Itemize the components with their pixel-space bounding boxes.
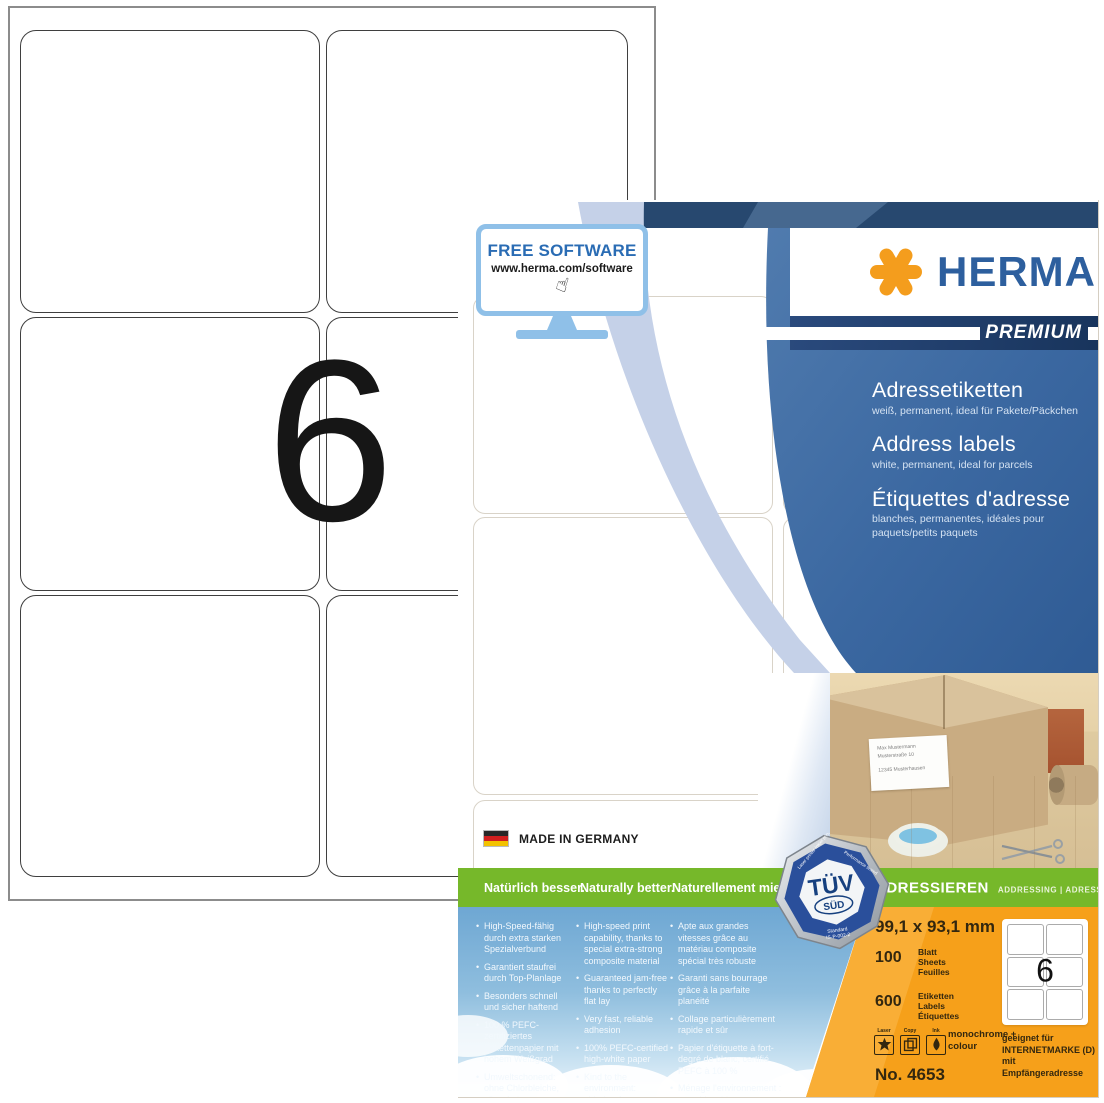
product-subtitle-en: white, permanent, ideal for parcels xyxy=(872,459,1084,473)
copy-label: Copy xyxy=(899,1029,921,1035)
label-cell xyxy=(20,30,320,313)
claim-en: Naturally better. xyxy=(580,881,674,895)
monitor-base xyxy=(516,330,608,339)
photo-address-label: Max Mustermann Musterstraße 10 12345 Mus… xyxy=(869,735,950,791)
inkjet-printer-icon: Ink xyxy=(925,1029,947,1055)
diagram-number: 6 xyxy=(1002,952,1088,989)
list-item: High-speed print capability, thanks to s… xyxy=(576,921,670,967)
list-item: High-Speed-fähig durch extra starken Spe… xyxy=(476,921,572,956)
brand-band: HERMA xyxy=(790,228,1098,316)
list-item: Blatt xyxy=(918,947,950,957)
diagram-cell xyxy=(1046,989,1083,1020)
brand-name: HERMA xyxy=(937,248,1096,296)
features-column-fr: Apte aux grandes vitesses grâce au matér… xyxy=(670,921,782,1098)
list-item: Feuilles xyxy=(918,967,950,977)
diagram-cell xyxy=(1007,989,1044,1020)
free-software-title: FREE SOFTWARE xyxy=(481,241,643,261)
list-item: Labels xyxy=(918,1001,959,1011)
monitor-screen: FREE SOFTWARE www.herma.com/software ☝ xyxy=(476,224,648,316)
german-flag-icon xyxy=(483,830,509,847)
list-item: Apte aux grandes vitesses grâce au matér… xyxy=(670,921,782,967)
list-item: Besonders schnell und sicher haftend xyxy=(476,991,572,1014)
diagram-cell xyxy=(1046,924,1083,955)
ghost-label-outline xyxy=(473,517,773,795)
product-box: FREE SOFTWARE www.herma.com/software ☝ H… xyxy=(458,200,1099,1098)
copier-icon: Copy xyxy=(899,1029,921,1055)
list-item: Ménage l'environnement : sans blanchimen… xyxy=(670,1083,782,1098)
list-item: Sheets xyxy=(918,957,950,967)
made-in-germany-label: MADE IN GERMANY xyxy=(519,832,639,846)
sheet-units: BlattSheetsFeuilles xyxy=(918,947,950,978)
monitor-stand xyxy=(547,316,577,330)
list-item: Guaranteed jam-free thanks to perfectly … xyxy=(576,973,670,1008)
product-title-de: Adressetiketten xyxy=(872,378,1084,403)
category-subtitle: ADDRESSING | ADRESSER xyxy=(998,885,1099,894)
hand-pointer-icon: ☝ xyxy=(553,274,571,297)
ink-label: Ink xyxy=(925,1029,947,1035)
photo-tape-roll xyxy=(894,823,942,849)
list-item: Etiketten xyxy=(918,991,959,1001)
list-item: Very fast, reliable adhesion xyxy=(576,1014,670,1037)
sheet-count: 100 xyxy=(875,949,902,967)
list-item: Garantiert staufrei durch Top-Planlage xyxy=(476,962,572,985)
photo-tape-roll-base xyxy=(888,825,948,857)
list-item: Umweltschonend: ohne Chlorbleiche, säure… xyxy=(476,1072,572,1098)
category-bar: ADRESSIEREN ADDRESSING | ADRESSER xyxy=(875,879,1099,896)
printer-compatibility-icons: Laser Copy Ink xyxy=(873,1029,947,1055)
product-title-fr: Étiquettes d'adresse xyxy=(872,487,1084,512)
list-item: Kind to the environment: chlorine-free b… xyxy=(576,1072,670,1098)
product-subtitle-de: weiß, permanent, ideal für Pakete/Päckch… xyxy=(872,405,1084,419)
diagram-cell xyxy=(1007,924,1044,955)
premium-label: PREMIUM xyxy=(978,316,1082,350)
herma-asterisk-icon xyxy=(868,244,924,300)
list-item: Collage particulièrement rapide et sûr xyxy=(670,1014,782,1037)
claim-de: Natürlich besser. xyxy=(484,881,585,895)
item-number: No. 4653 xyxy=(875,1065,945,1085)
labels-per-sheet-number: 6 xyxy=(254,326,406,556)
photo-scissors xyxy=(1000,839,1074,865)
features-column-de: High-Speed-fähig durch extra starken Spe… xyxy=(476,921,572,1098)
label-count: 600 xyxy=(875,993,902,1011)
list-item: 100% PEFC-certified high-white paper xyxy=(576,1043,670,1066)
label-cell xyxy=(20,595,320,877)
features-column-en: High-speed print capability, thanks to s… xyxy=(576,921,670,1098)
list-item: Garanti sans bourrage grâce à la parfait… xyxy=(670,973,782,1008)
internetmarke-note: geeignet für INTERNETMARKE (D) mit Empfä… xyxy=(1002,1033,1098,1080)
category-title: ADRESSIEREN xyxy=(875,879,989,896)
free-software-monitor: FREE SOFTWARE www.herma.com/software ☝ xyxy=(476,224,648,339)
made-in-germany: MADE IN GERMANY xyxy=(483,830,639,847)
photo-paper-roll xyxy=(1052,765,1098,805)
product-subtitle-fr: blanches, permanentes, idéales pour paqu… xyxy=(872,513,1084,540)
product-title-en: Address labels xyxy=(872,432,1084,457)
premium-block xyxy=(1088,327,1098,340)
laser-printer-icon: Laser xyxy=(873,1029,895,1055)
list-item: Étiquettes xyxy=(918,1011,959,1021)
list-item: Papier d'étiquette à fort-degré de blanc… xyxy=(670,1043,782,1078)
laser-label: Laser xyxy=(873,1029,895,1035)
product-titles: Adressetiketten weiß, permanent, ideal f… xyxy=(872,378,1084,555)
label-units: EtikettenLabelsÉtiquettes xyxy=(918,991,959,1022)
page: { "sheet": { "big_number": "6" }, "box":… xyxy=(0,0,1104,1103)
premium-stripe xyxy=(758,327,980,340)
tuv-sued-seal: TÜV SÜD Laser printer Inkjet printer Per… xyxy=(765,825,898,958)
address-line: 12345 Musterhausen xyxy=(878,764,948,775)
sheet-layout-diagram: 6 xyxy=(1002,919,1088,1025)
list-item: 100 % PEFC-zertifiziertes Etikettenpapie… xyxy=(476,1020,572,1066)
